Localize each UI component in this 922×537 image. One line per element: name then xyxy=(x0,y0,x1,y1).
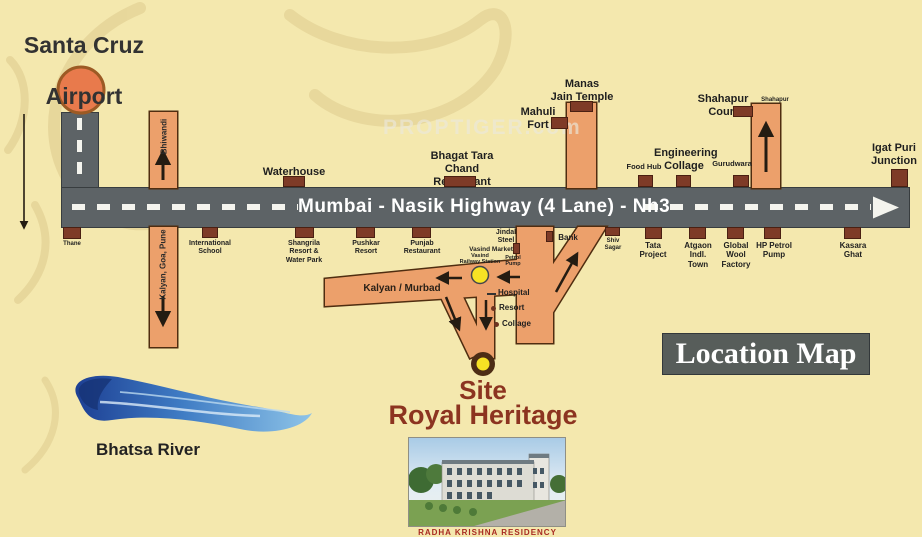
orange-roads-fill xyxy=(150,103,780,358)
airport-title-line1: Santa Cruz xyxy=(24,32,144,58)
vasind-station-circle xyxy=(472,267,489,284)
highway-bound-arrow xyxy=(556,254,577,292)
label-thane: Thane xyxy=(55,241,89,248)
marker-vasind-market xyxy=(513,243,520,254)
marker-bhagat xyxy=(444,176,476,187)
marker-kasara-ghat xyxy=(844,227,861,239)
river-artwork xyxy=(75,376,312,432)
bhiwandi-road-label: Bhiwandi xyxy=(151,114,176,158)
label-tata-project: Tata Project xyxy=(630,241,676,260)
marker-food-hub xyxy=(638,175,653,187)
site-name-label: Royal Heritage xyxy=(383,400,583,432)
hospital-tick xyxy=(487,293,496,295)
label-engineering-collage: Engineering Collage xyxy=(654,147,714,173)
label-kalyan-murbad: Kalyan / Murbad xyxy=(356,283,448,295)
bhiwandi-text: Bhiwandi xyxy=(159,118,168,154)
marker-manas-jain-temple xyxy=(570,101,593,112)
marker-atgaon xyxy=(689,227,706,239)
label-jindal-steel: Jindal Steel xyxy=(486,229,526,246)
marker-punjab xyxy=(412,227,431,238)
marker-global-wool xyxy=(727,227,744,239)
label-bank: Bank xyxy=(554,233,582,242)
kalyan-goa-pune-road-label: Kalyan, Goa, Pune xyxy=(151,230,176,298)
marker-mahuli-fort xyxy=(551,117,568,129)
airport-title: Santa Cruz Airport xyxy=(6,8,162,109)
label-gurudwara: Gurudwara xyxy=(708,160,756,169)
marker-pushkar xyxy=(356,227,375,238)
marker-shiv-sagar xyxy=(605,227,620,236)
label-international-school: International School xyxy=(180,240,240,257)
label-vasind-station: Vasind Railway Station xyxy=(453,253,507,266)
location-map-title-box: Location Map xyxy=(662,333,870,375)
site-circle-ring xyxy=(471,352,495,376)
photo-caption: RADHA KRISHNA RESIDENCY xyxy=(400,528,575,537)
marker-hp-petrol xyxy=(764,227,781,239)
marker-international-school xyxy=(202,227,218,238)
label-resort: Resort xyxy=(499,303,539,312)
label-shiv-sagar: Shiv Sagar xyxy=(598,238,628,252)
marker-gurudwara xyxy=(733,175,749,187)
marker-engineering-collage xyxy=(676,175,691,187)
label-shangrila: Shangrila Resort & Water Park xyxy=(278,240,330,265)
label-hp-petrol: HP Petrol Pump xyxy=(748,241,800,260)
label-pushkar: Pushkar Resort xyxy=(342,240,390,257)
marker-tata-project xyxy=(645,227,662,239)
site-diagonal-arrow xyxy=(446,297,459,329)
site-circle xyxy=(477,358,490,371)
marker-shangrila xyxy=(295,227,314,238)
airport-title-line2: Airport xyxy=(46,83,123,109)
resort-dot xyxy=(491,306,496,311)
site-building-photo xyxy=(408,437,566,527)
kalyan-goa-pune-text: Kalyan, Goa, Pune xyxy=(159,229,168,299)
marker-bank xyxy=(546,231,553,242)
location-map-text: Location Map xyxy=(676,337,857,371)
highway-center-dash-left xyxy=(72,204,298,210)
label-igatpuri-junction: Igat Puri Junction xyxy=(868,142,920,168)
collage-dot xyxy=(494,322,499,327)
label-hospital: Hospital xyxy=(498,288,542,297)
label-collage: Collage xyxy=(502,319,542,328)
orange-roads-outline xyxy=(150,103,780,358)
label-punjab: Punjab Restaurant xyxy=(398,240,446,257)
highway-center-dash-right xyxy=(645,204,871,210)
building-illustration xyxy=(409,438,566,527)
marker-thane xyxy=(63,227,81,239)
label-kasara-ghat: Kasara Ghat xyxy=(830,241,876,260)
label-bhatsa-river: Bhatsa River xyxy=(88,440,208,460)
marker-waterhouse xyxy=(283,176,305,187)
marker-shahapur-court xyxy=(733,106,753,117)
highway-label: Mumbai - Nasik Highway (4 Lane) - Nh3 xyxy=(298,196,646,218)
label-shahapur-small: Shahapur xyxy=(758,97,792,104)
highway-center-dash-vertical xyxy=(77,118,82,184)
marker-igatpuri-junction xyxy=(891,169,908,187)
